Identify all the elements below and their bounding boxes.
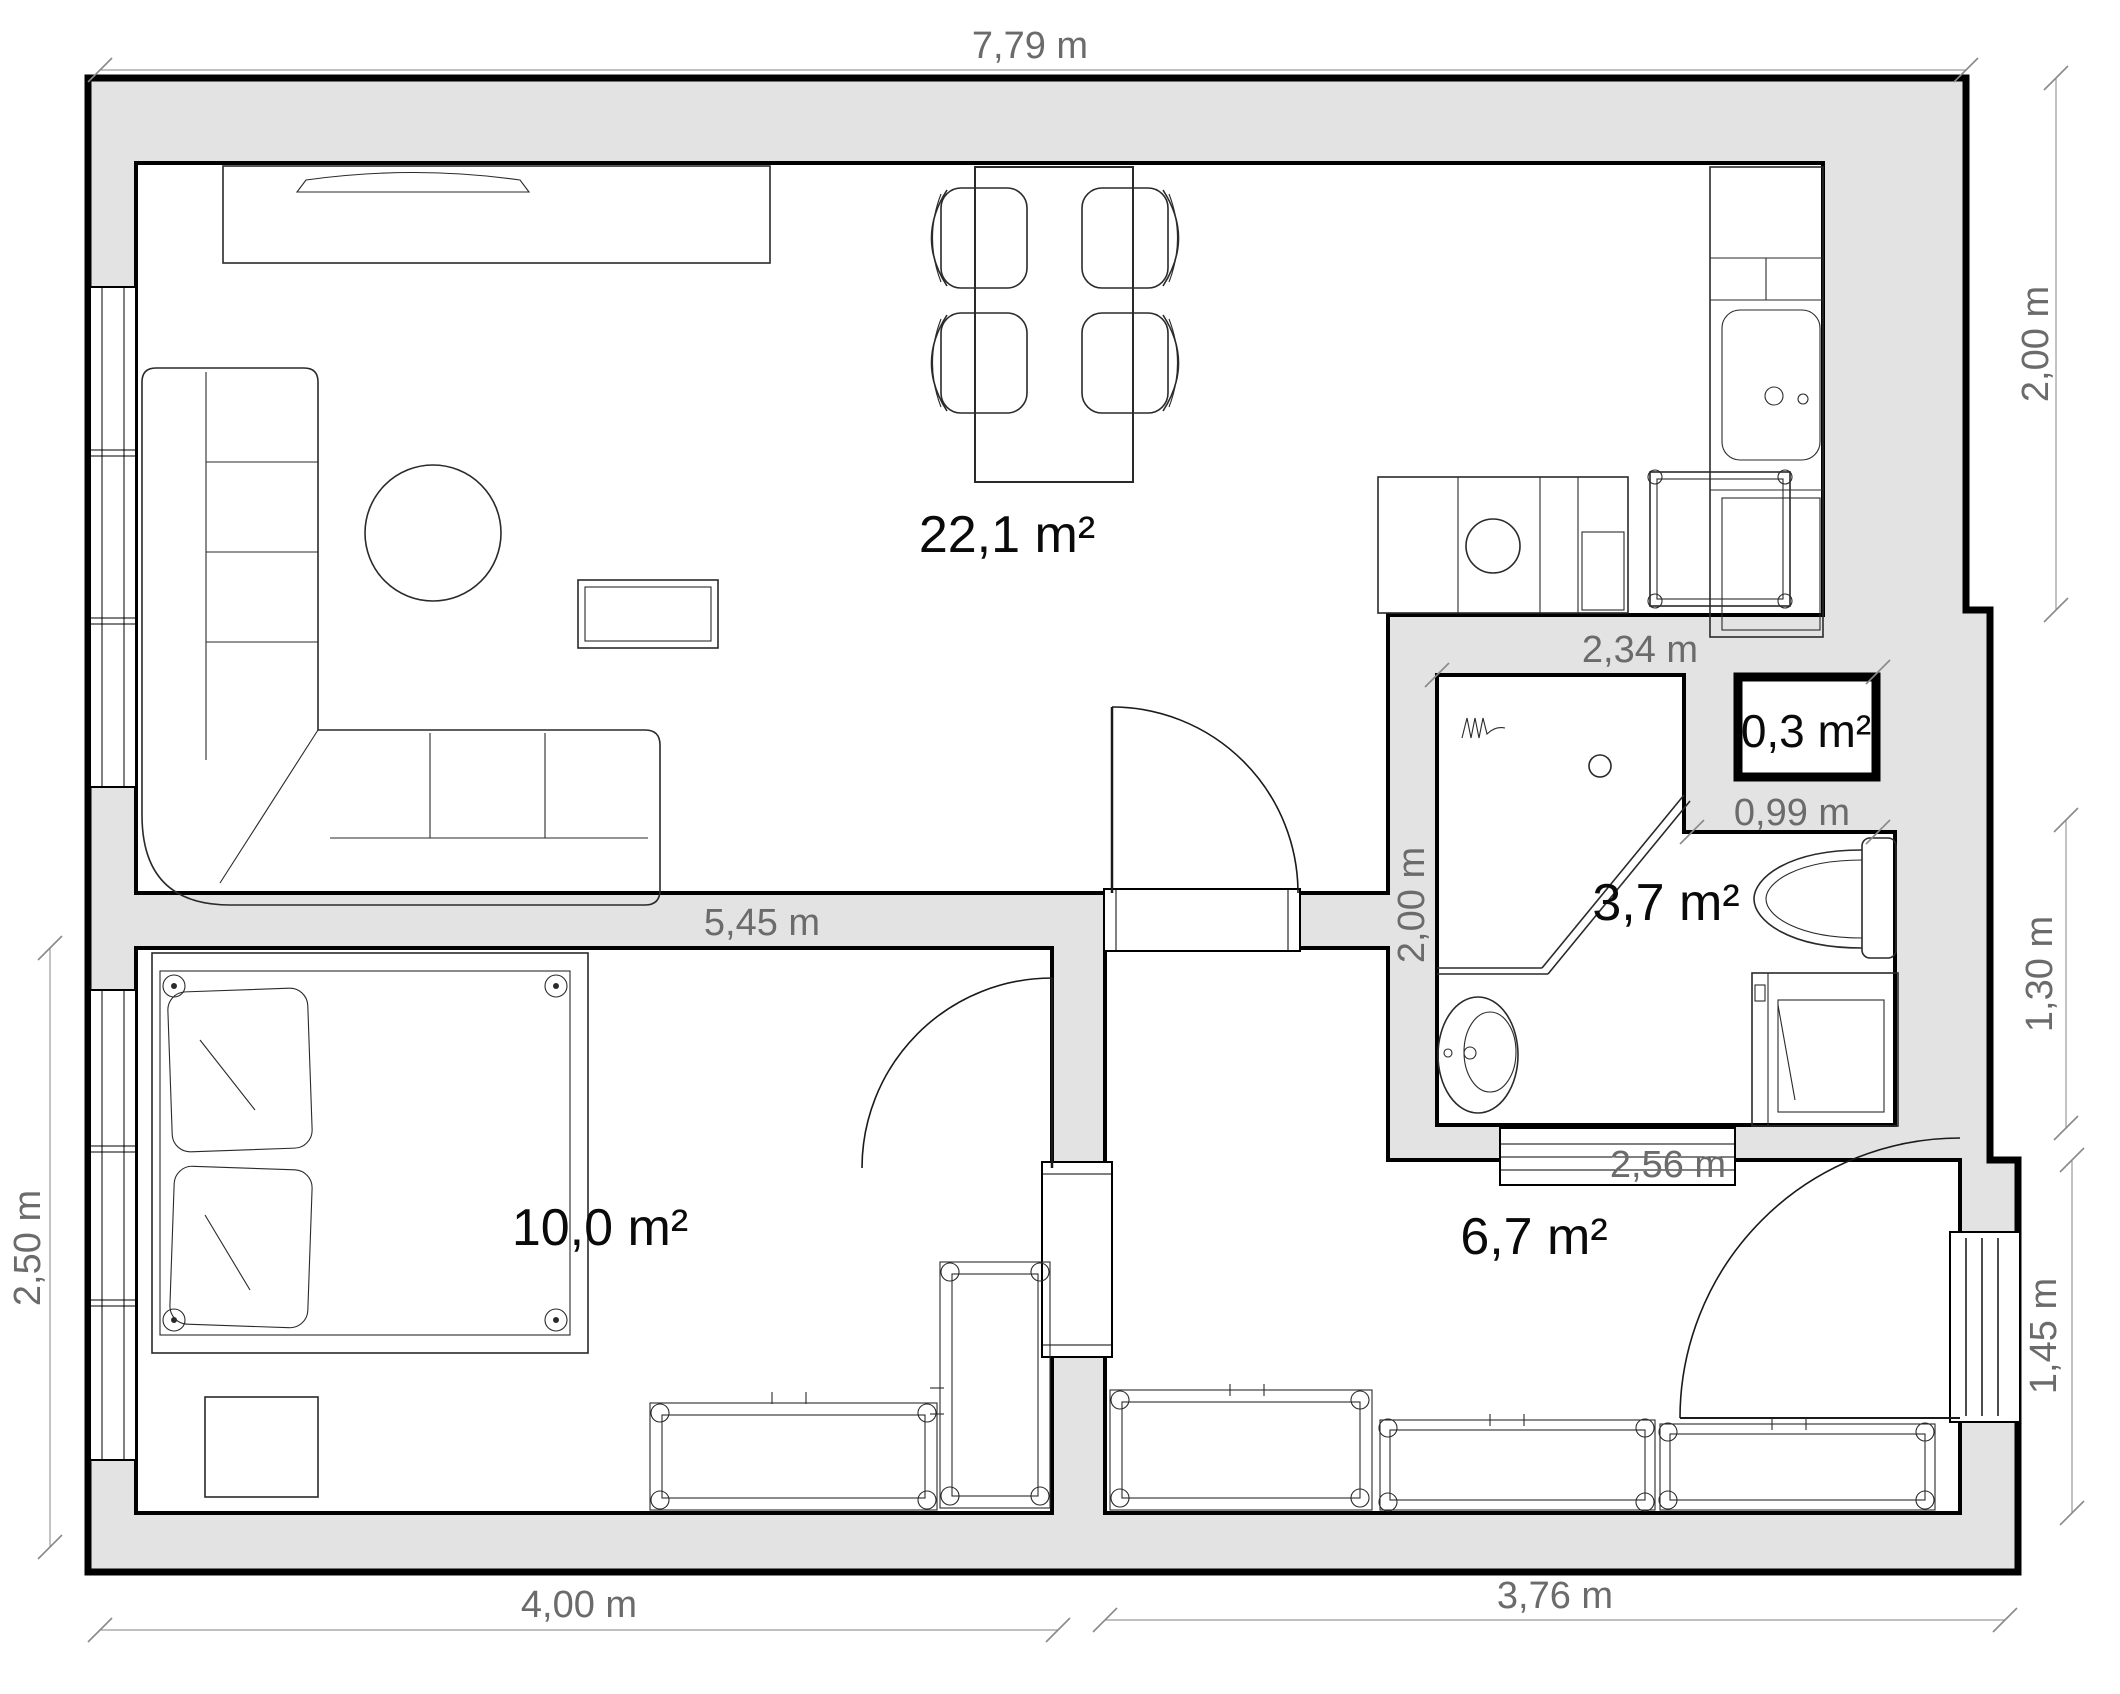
window-living-room [90, 287, 136, 787]
dim-top-label: 7,79 m [972, 25, 1088, 67]
dim-right-mid-label: 1,30 m [2019, 916, 2061, 1032]
dim-bathroom-top-label: 2,34 m [1582, 629, 1698, 671]
dim-bottom-left-label: 4,00 m [521, 1584, 637, 1626]
window-bedroom [90, 990, 136, 1460]
area-label-closet: 0,3 m² [1741, 705, 1871, 757]
dim-hallway-top-label: 2,56 m [1610, 1144, 1726, 1186]
floor-plan-drawing: 7,79 m 2,00 m 1,30 m 1,45 m 2,50 m 4,00 … [0, 0, 2120, 1694]
dim-closet-width-label: 0,99 m [1734, 792, 1850, 834]
area-label-bedroom: 10,0 m² [512, 1199, 688, 1257]
area-label-bathroom: 3,7 m² [1592, 874, 1739, 932]
dim-inner-wall-label: 5,45 m [704, 902, 820, 944]
dim-right-bottom-label: 1,45 m [2023, 1278, 2065, 1394]
dim-right-top-label: 2,00 m [2015, 286, 2057, 402]
area-label-living: 22,1 m² [919, 506, 1095, 564]
floor-plan-canvas: 7,79 m 2,00 m 1,30 m 1,45 m 2,50 m 4,00 … [0, 0, 2120, 1694]
dim-left-label: 2,50 m [7, 1190, 49, 1306]
dim-bottom-right-label: 3,76 m [1497, 1575, 1613, 1617]
area-label-hallway: 6,7 m² [1460, 1208, 1607, 1266]
dim-bathroom-left-label: 2,00 m [1391, 847, 1433, 963]
